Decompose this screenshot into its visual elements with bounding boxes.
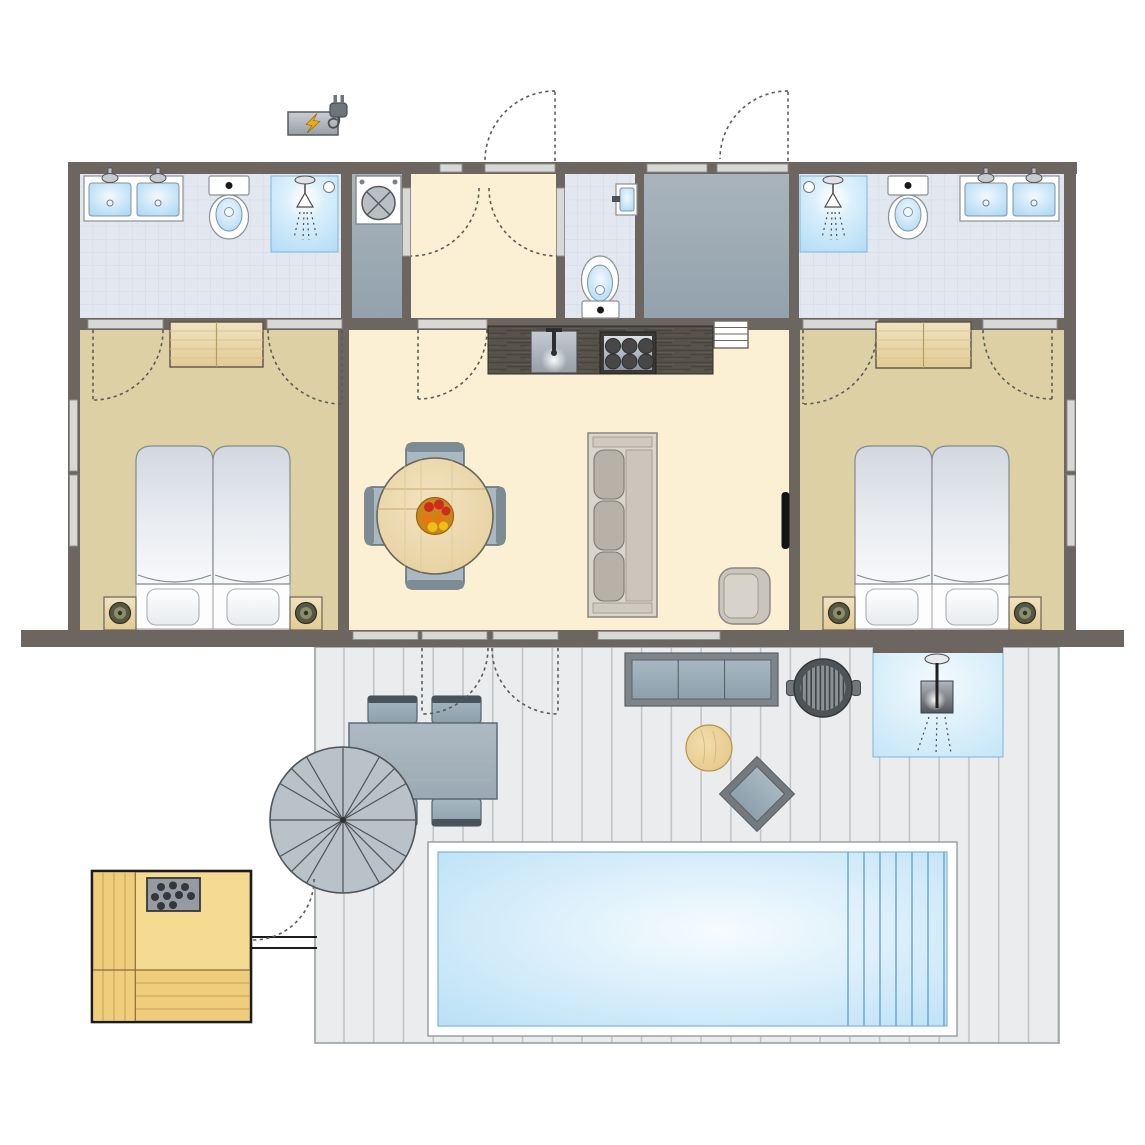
window xyxy=(1067,400,1075,471)
floor-plan-drawing xyxy=(0,0,1145,1145)
mattress xyxy=(213,446,290,584)
outdoor-chair xyxy=(432,696,481,723)
interior-wall xyxy=(789,330,800,630)
sofa-cushion xyxy=(594,501,624,550)
shower-stall xyxy=(271,176,338,252)
mattress xyxy=(136,446,213,584)
storage-room-floor xyxy=(644,174,789,318)
floor-plan-canvas xyxy=(0,0,1145,1145)
window xyxy=(1067,475,1075,546)
pool-water xyxy=(438,852,947,1026)
radiator-icon xyxy=(714,321,748,348)
sofa-cushion xyxy=(594,552,624,601)
sofa-seat xyxy=(626,450,652,601)
kitchen xyxy=(488,321,748,374)
interior-wall xyxy=(341,174,352,318)
exterior-wall-bottom xyxy=(21,630,1124,647)
plug-icon xyxy=(330,103,347,117)
window xyxy=(440,164,462,172)
door-threshold xyxy=(557,188,565,256)
door-threshold xyxy=(803,320,878,329)
mattress xyxy=(855,446,932,584)
outdoor-shower xyxy=(873,645,1003,757)
drain-icon xyxy=(324,182,335,193)
armchair xyxy=(719,568,770,624)
interior-wall xyxy=(789,174,799,318)
sofa-armrest xyxy=(593,437,652,447)
storage-door-threshold xyxy=(717,164,788,172)
terrace-door-leaf xyxy=(493,632,558,640)
door-threshold xyxy=(267,320,342,329)
double-bed xyxy=(136,446,290,629)
wardrobe xyxy=(876,322,971,368)
window xyxy=(647,164,707,172)
wardrobe xyxy=(170,322,263,367)
toilet-icon xyxy=(582,256,620,318)
parasol-icon xyxy=(270,747,416,893)
drain-icon xyxy=(155,200,161,206)
nightstand xyxy=(290,597,322,630)
sofa-armrest xyxy=(593,603,652,613)
window xyxy=(353,632,418,640)
outdoor-chair xyxy=(368,696,417,723)
door-threshold xyxy=(88,320,163,329)
pillow xyxy=(866,589,918,625)
sauna-heater-icon xyxy=(147,878,200,911)
drain-icon xyxy=(983,200,989,206)
double-bed xyxy=(855,446,1009,629)
dining-table xyxy=(377,458,493,575)
outdoor-sofa xyxy=(625,653,778,706)
double-washbasin xyxy=(84,168,183,221)
sauna-walkway xyxy=(251,937,317,948)
stove-icon xyxy=(600,332,656,374)
door-threshold xyxy=(983,320,1057,329)
faucet-icon xyxy=(612,196,620,202)
window xyxy=(70,475,78,546)
fruit-bowl-icon xyxy=(417,498,454,535)
washing-machine-icon xyxy=(356,176,401,224)
sauna-door-swing-arc xyxy=(253,879,314,940)
outdoor-chair xyxy=(432,799,481,826)
double-washbasin xyxy=(960,168,1059,221)
pillow xyxy=(946,589,998,625)
drain-icon xyxy=(107,200,113,206)
drain-icon xyxy=(804,182,815,193)
storage-door-swing-arc xyxy=(720,91,788,161)
front-door-threshold xyxy=(485,164,555,172)
swimming-pool xyxy=(428,842,957,1036)
mattress xyxy=(932,446,1009,584)
nightstand xyxy=(823,597,855,630)
nightstand xyxy=(1009,597,1041,630)
door-threshold xyxy=(418,320,487,329)
sofa-cushion xyxy=(594,450,624,499)
toilet-icon xyxy=(888,176,928,239)
exterior-wall-top xyxy=(68,162,1077,174)
nightstand xyxy=(104,597,136,630)
toilet-icon xyxy=(209,176,249,239)
wall-washbasin xyxy=(612,184,637,215)
hallway-floor xyxy=(411,174,556,318)
terrace-door-leaf xyxy=(422,632,487,640)
pillow xyxy=(227,589,279,625)
laundry-room xyxy=(356,176,401,224)
window xyxy=(598,632,720,640)
pillow xyxy=(147,589,199,625)
ev-charger-icon xyxy=(288,95,347,135)
shower-rose-icon xyxy=(925,654,949,664)
interior-wall xyxy=(338,330,349,630)
door-threshold xyxy=(403,188,411,256)
front-door-swing-arc xyxy=(485,91,555,161)
sofa xyxy=(588,433,657,617)
side-table xyxy=(686,725,732,771)
drain-icon xyxy=(1031,200,1037,206)
window xyxy=(70,400,78,471)
shower-stall xyxy=(800,176,867,252)
tv-icon xyxy=(782,492,790,549)
sauna xyxy=(92,871,317,1022)
kitchen-sink-icon xyxy=(531,328,577,373)
